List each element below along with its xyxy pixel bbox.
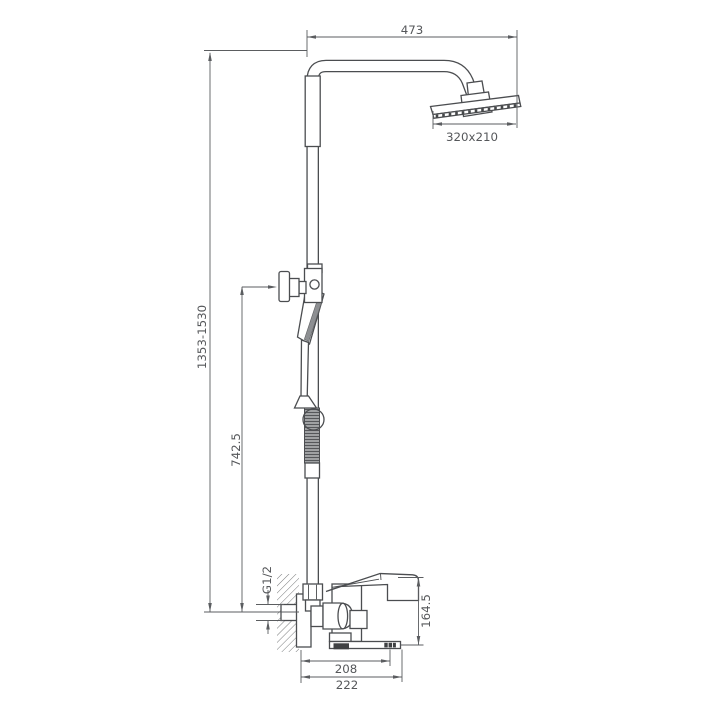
- dim-inlet-thread-label: G1/2: [260, 566, 274, 594]
- dim-hand-shower-height-label: 742.5: [229, 433, 243, 467]
- rain-shower-head: [431, 81, 521, 118]
- cylinder-cap: [338, 603, 348, 629]
- slider-holder: [279, 264, 322, 303]
- riser-pipe-and-arm: [305, 66, 473, 601]
- holder-pivot: [310, 280, 319, 289]
- inlet-pipe: [281, 605, 298, 621]
- dim-mixer-height-label: 164.5: [419, 594, 433, 628]
- knob-shaft-inner: [299, 282, 306, 294]
- hand-shower-handle: [301, 340, 309, 397]
- dim-spout-aerator-label: 208: [335, 662, 358, 676]
- dim-overall-height-label: 1353-1530: [195, 305, 209, 369]
- shower-system-diagram: 473 320x210 1353-1530 742.5 G1/2 164.5: [0, 0, 720, 720]
- dim-head-size-label: 320x210: [446, 130, 498, 144]
- spout-root: [330, 633, 352, 642]
- aerator-slots: [384, 643, 396, 648]
- knob-shaft-outer: [289, 279, 299, 297]
- dim-arm-reach-label: 473: [401, 23, 424, 37]
- eccentric-connector: [311, 606, 323, 627]
- dimension-hand-shower-height: 742.5: [229, 285, 277, 612]
- hose-end-fitting: [305, 463, 320, 478]
- upper-pipe-sleeve: [305, 76, 320, 147]
- spout-underside-dark: [334, 643, 350, 649]
- dimension-overall-height: 1353-1530: [195, 51, 307, 613]
- bath-mixer: [277, 574, 419, 653]
- riser-hex-nut: [303, 584, 323, 600]
- diverter-knob: [350, 611, 367, 629]
- hose-section: [305, 408, 320, 463]
- handle-tick: [381, 574, 382, 580]
- holder-knob: [279, 272, 290, 302]
- dim-spout-total-label: 222: [336, 678, 359, 692]
- technical-drawing: 473 320x210 1353-1530 742.5 G1/2 164.5: [0, 0, 720, 720]
